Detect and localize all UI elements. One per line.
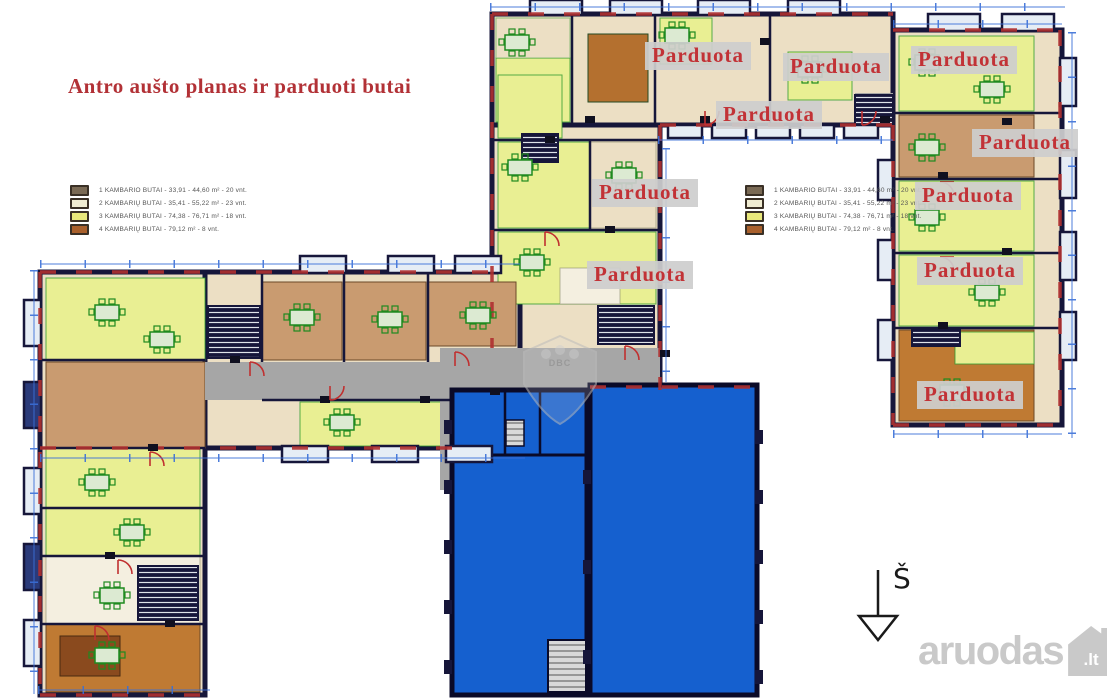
legend-item-label: 3 KAMBARIŲ BUTAI - 74,38 - 76,71 m² - 18… (99, 213, 247, 220)
sold-badge: Parduota (592, 179, 698, 207)
legend-swatch-4room (745, 224, 764, 235)
floorplan-page: Antro aušto planas ir parduoti butai 1 K… (0, 0, 1107, 699)
legend-swatch-1room (70, 185, 89, 196)
shield-icon (518, 332, 602, 428)
legend-item: 2 KAMBARIŲ BUTAI - 35,41 - 55,22 m² - 23… (70, 199, 300, 207)
legend-left: 1 KAMBARIO BUTAI - 33,91 - 44,60 m² - 20… (70, 186, 300, 238)
legend-swatch-2room (745, 198, 764, 209)
legend-swatch-4room (70, 224, 89, 235)
aruodas-tld-text: .lt (1068, 650, 1107, 670)
house-icon: .lt (1068, 626, 1107, 676)
legend-swatch-1room (745, 185, 764, 196)
sold-badge: Parduota (917, 257, 1023, 285)
legend-swatch-3room (70, 211, 89, 222)
sold-badge: Parduota (645, 42, 751, 70)
sold-badge: Parduota (587, 261, 693, 289)
legend-swatch-2room (70, 198, 89, 209)
legend-item-label: 1 KAMBARIO BUTAI - 33,91 - 44,60 m² - 20… (99, 187, 247, 194)
sold-badge: Parduota (972, 129, 1078, 157)
legend-item: 1 KAMBARIO BUTAI - 33,91 - 44,60 m² - 20… (70, 186, 300, 194)
commercial-halls (444, 385, 763, 695)
legend-swatch-3room (745, 211, 764, 222)
sold-badge: Parduota (911, 46, 1017, 74)
legend-item-label: 2 KAMBARIŲ BUTAI - 35,41 - 55,22 m² - 23… (774, 200, 922, 207)
legend-item-label: 4 KAMBARIŲ BUTAI - 79,12 m² - 8 vnt. (99, 226, 219, 233)
compass-label: Š (893, 562, 911, 595)
legend-item-label: 1 KAMBARIO BUTAI - 33,91 - 44,60 m² - 20… (774, 187, 922, 194)
sold-badge: Parduota (783, 53, 889, 81)
aruodas-watermark: aruodas .lt (918, 626, 1107, 676)
sold-badge: Parduota (716, 101, 822, 129)
sold-badge: Parduota (917, 381, 1023, 409)
aruodas-brand-text: aruodas (918, 626, 1063, 676)
legend-item: 4 KAMBARIŲ BUTAI - 79,12 m² - 8 vnt. (70, 225, 300, 233)
dbc-watermark: DBC (518, 332, 602, 428)
legend-item-label: 4 KAMBARIŲ BUTAI - 79,12 m² - 8 vnt. (774, 226, 894, 233)
sold-badge: Parduota (915, 182, 1021, 210)
legend-item: 3 KAMBARIŲ BUTAI - 74,38 - 76,71 m² - 18… (70, 212, 300, 220)
legend-item: 4 KAMBARIŲ BUTAI - 79,12 m² - 8 vnt. (745, 225, 975, 233)
legend-item: 3 KAMBARIŲ BUTAI - 74,38 - 76,71 m² - 18… (745, 212, 975, 220)
legend-item-label: 2 KAMBARIŲ BUTAI - 35,41 - 55,22 m² - 23… (99, 200, 247, 207)
page-title: Antro aušto planas ir parduoti butai (68, 74, 411, 99)
dbc-text: DBC (518, 358, 602, 368)
legend-item-label: 3 KAMBARIŲ BUTAI - 74,38 - 76,71 m² - 18… (774, 213, 922, 220)
